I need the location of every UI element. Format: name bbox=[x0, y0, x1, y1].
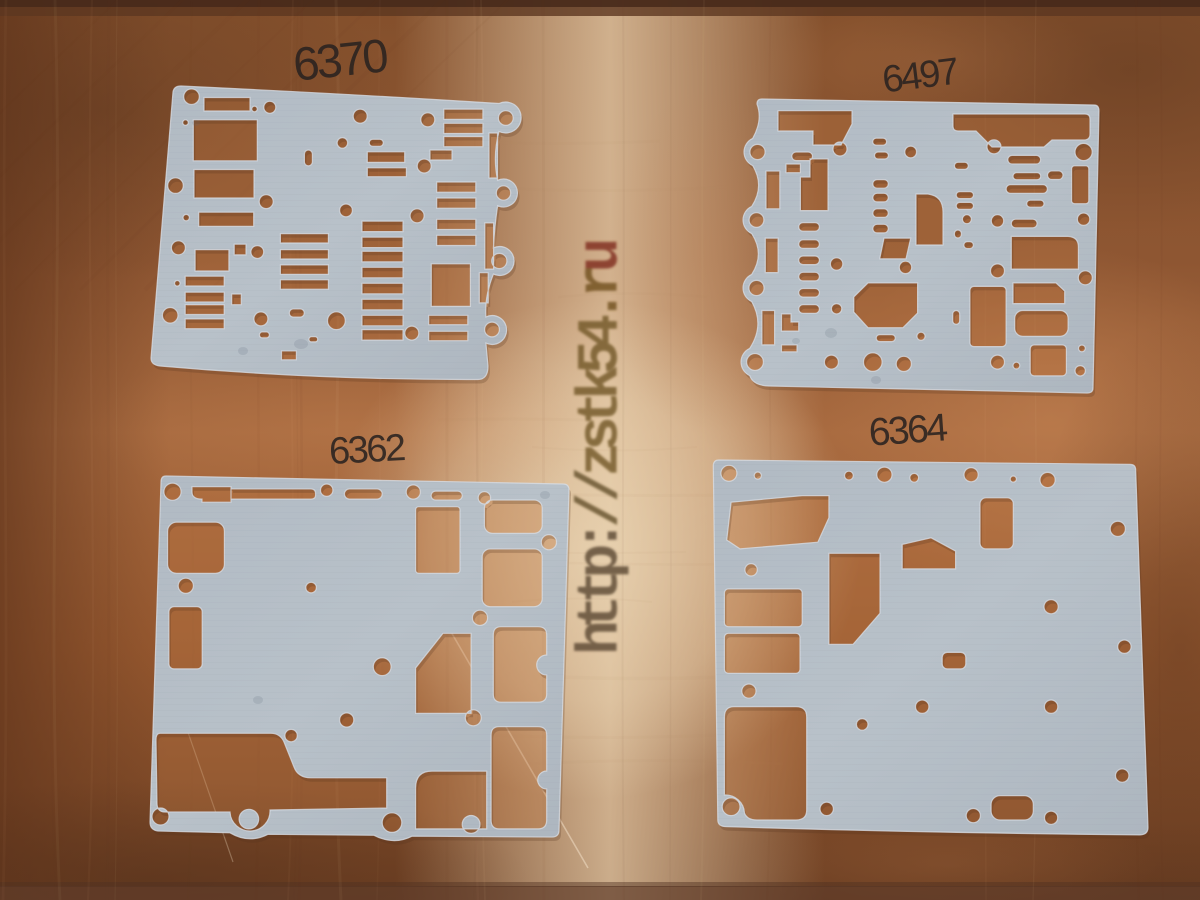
svg-text:6370: 6370 bbox=[290, 28, 389, 91]
svg-text:6362: 6362 bbox=[328, 427, 406, 473]
svg-text:6364: 6364 bbox=[867, 406, 948, 454]
svg-text:http://zstk54.ru: http://zstk54.ru bbox=[570, 241, 635, 655]
